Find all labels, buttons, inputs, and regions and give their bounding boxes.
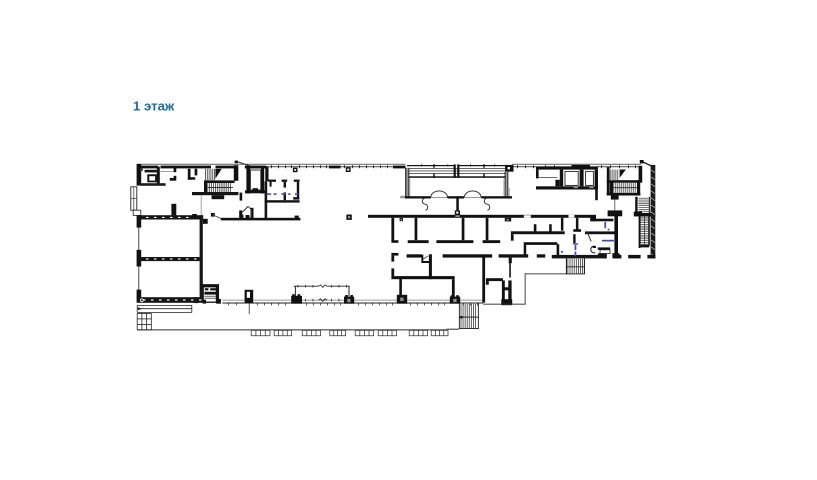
svg-text:1 этаж: 1 этаж <box>133 99 175 114</box>
